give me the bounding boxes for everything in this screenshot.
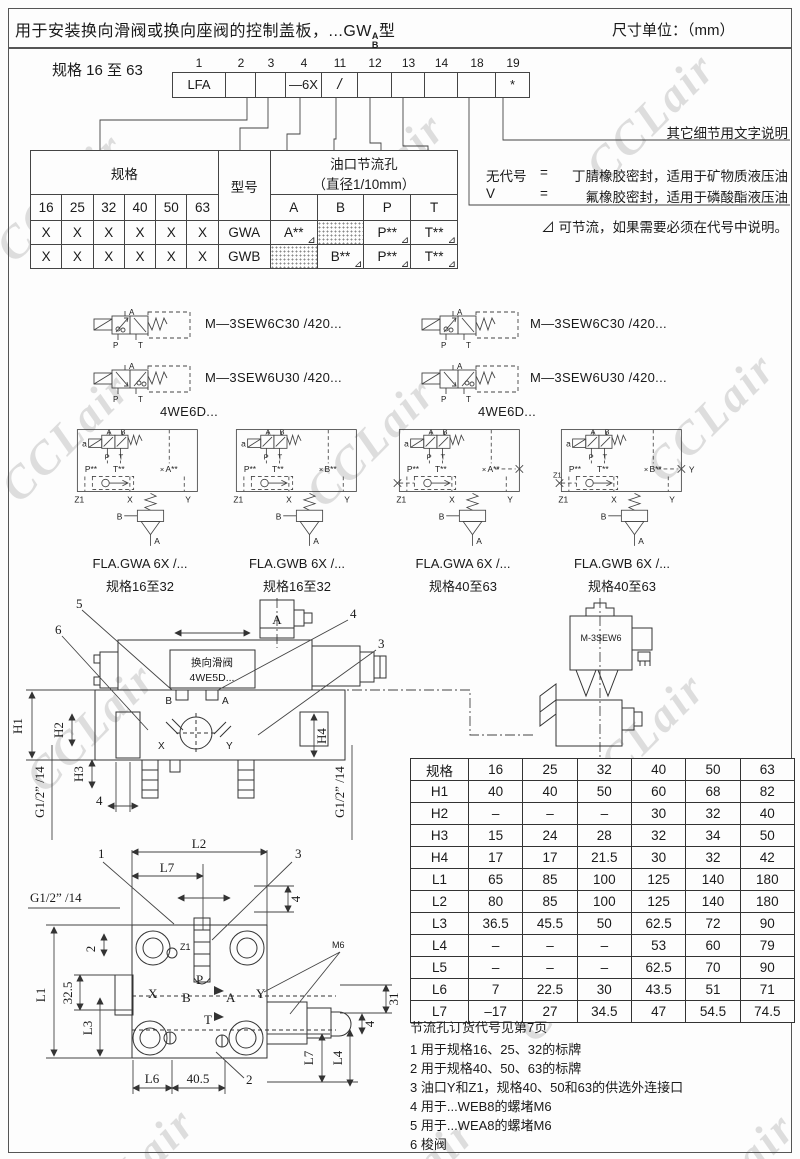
dim-l4: L4 [330, 1050, 345, 1065]
seal-code-row: V = 氟橡胶密封，适用于磷酸酯液压油 [486, 186, 788, 206]
mark-cell: X [156, 221, 187, 245]
port-z1-label: Z1 [180, 942, 191, 952]
shuttle-port-b: B [439, 512, 445, 522]
size-cell: 25 [62, 195, 93, 221]
dim-cell: 43.5 [631, 979, 685, 1001]
throttle-triangle-icon: ⊿ [541, 220, 555, 235]
port-label-p: P [441, 341, 446, 350]
footnote: 4 用于...WEB8的螺堵M6 [410, 1097, 683, 1116]
dim-cell: 62.5 [631, 957, 685, 979]
orifice-cell: A**⊿ [270, 221, 317, 245]
port-z1: Z1 [558, 495, 568, 505]
dim-cell: 180 [740, 869, 794, 891]
circuit-graphic [77, 430, 197, 546]
port-y: Y [507, 495, 513, 505]
size-cell: 50 [156, 195, 187, 221]
dim-cell: – [469, 803, 523, 825]
dim-cell: 30 [631, 847, 685, 869]
dim-4: 4 [96, 793, 103, 808]
circuit-caption: FLA.GWA 6X /... [383, 556, 543, 571]
pos-number: 12 [358, 56, 392, 70]
dim-header: 规格 [411, 759, 469, 781]
dim-header: 63 [740, 759, 794, 781]
dim-cell: 60 [631, 781, 685, 803]
port-label-a: A [457, 362, 463, 371]
port-x: X [127, 495, 133, 505]
port-star: A** [166, 464, 179, 474]
dim-cell: 80 [469, 891, 523, 913]
dim-cell: 34.5 [577, 1001, 631, 1023]
dim-cell: 34 [686, 825, 740, 847]
dim-cell: 50 [577, 913, 631, 935]
port-star: A** [488, 464, 501, 474]
ordering-code-boxes: LFA —6X / * [172, 72, 530, 98]
dim-cell: L1 [411, 869, 469, 891]
code-box [392, 72, 425, 98]
footnote: 5 用于...WEA8的螺堵M6 [410, 1116, 683, 1135]
port-label-t: T [466, 341, 471, 350]
pilot-model-label: M—3SEW6U30 /420... [530, 370, 667, 385]
pilot-model-label: M—3SEW6C30 /420... [205, 316, 342, 331]
orifice-line2: （直径1/10mm） [271, 173, 457, 193]
port-a: A [590, 427, 595, 436]
dim-cell: L3 [411, 913, 469, 935]
dim-l6: L6 [145, 1071, 160, 1086]
dim-cell: 71 [740, 979, 794, 1001]
port-cell: B [317, 195, 364, 221]
footnote: 2 用于规格40、50、63的标牌 [410, 1059, 683, 1078]
dim-cell: 40 [469, 781, 523, 803]
port-t: T [603, 453, 608, 462]
callout-2: 2 [246, 1072, 253, 1087]
equals-sign: = [540, 186, 558, 206]
dim-cell: – [523, 935, 577, 957]
port-p: P [427, 453, 432, 462]
port-label-a: A [129, 362, 135, 371]
dim-cell: 32 [631, 825, 685, 847]
dim-cell: 7 [469, 979, 523, 1001]
port-label-a: A [457, 308, 463, 317]
equals-sign: = [540, 165, 558, 185]
orifice-value: B** [331, 249, 351, 264]
circuit-diagram-gwa-large: a A B P T P** T** × A** Z1 X Y B A [390, 425, 540, 557]
circuit-range: 规格16至32 [60, 576, 220, 595]
orifice-cell: B**⊿ [317, 245, 364, 269]
table-row: L28085100125140180 [411, 891, 795, 913]
dim-cell: 53 [631, 935, 685, 957]
pilot-sub-label: 4WE6D... [160, 404, 218, 419]
size-cell: 32 [93, 195, 124, 221]
callout-4: 4 [350, 606, 357, 621]
table-row: H2–––303240 [411, 803, 795, 825]
port-y: Y [185, 495, 191, 505]
dim-4b: 4 [362, 1020, 377, 1027]
callout-3: 3 [378, 636, 385, 651]
port-label-p: P [113, 341, 118, 350]
circuit-diagram-gwb-large: a A B P T P** T** × B** Z1 Y Z1 X Y B A [552, 425, 702, 557]
valve-symbol-graphic [422, 365, 518, 394]
orifice-cell-blocked [317, 221, 364, 245]
pos-number: 3 [256, 56, 286, 70]
circuit-range: 规格40至63 [542, 576, 702, 595]
mark-cell: X [31, 221, 62, 245]
mark-cell: X [62, 221, 93, 245]
circuit-caption: FLA.GWB 6X /... [217, 556, 377, 571]
port-t: T [278, 453, 283, 462]
pos-number: 4 [286, 56, 322, 70]
shuttle-port-b: B [117, 512, 123, 522]
dim-cell: 32 [686, 847, 740, 869]
dim-g12-left: G1/2” /14 [32, 766, 47, 818]
dimension-table: 规格 16 25 32 40 50 63 H1404050606882 H2––… [410, 758, 795, 1023]
solenoid-pilot-valve [540, 603, 652, 746]
port-b: B [121, 427, 126, 436]
mark-cell: X [124, 221, 155, 245]
dim-cell: H4 [411, 847, 469, 869]
units-label: 尺寸单位：（mm） [612, 19, 735, 40]
orifice-cell: P**⊿ [364, 221, 411, 245]
shuttle-port-a: A [313, 536, 319, 546]
dim-40-5: 40.5 [187, 1071, 210, 1086]
m6-label: M6 [332, 940, 345, 950]
dim-cell: 47 [631, 1001, 685, 1023]
pos-number: 1 [172, 56, 226, 70]
dim-cell: 32 [686, 803, 740, 825]
port-tstar: T** [435, 464, 447, 474]
dim-cell: 28 [577, 825, 631, 847]
dim-cell: 65 [469, 869, 523, 891]
port-label-p: P [113, 395, 118, 404]
port-a: A [265, 427, 270, 436]
connector-a-label: A [272, 612, 282, 627]
pilot-valve-symbol: A P T [410, 308, 522, 350]
port-x: X [449, 495, 455, 505]
dim-l7: L7 [160, 860, 175, 875]
pilot-model-label: M—3SEW6U30 /420... [205, 370, 342, 385]
dim-cell: 45.5 [523, 913, 577, 935]
dim-cell: 90 [740, 957, 794, 979]
pos-number: 2 [226, 56, 256, 70]
throttle-triangle-icon: ⊿ [401, 259, 409, 270]
title-suffix: 型 [379, 23, 396, 40]
x-mark: × [160, 465, 164, 474]
dim-cell: 50 [740, 825, 794, 847]
dim-cell: 40 [740, 803, 794, 825]
shuttle-port-a: A [638, 536, 644, 546]
pos-number: 11 [322, 56, 358, 70]
model-cell: GWA [218, 221, 270, 245]
port-p: P [105, 453, 110, 462]
port-x: X [611, 495, 617, 505]
solenoid-label: a [82, 438, 87, 448]
seal-code-row: 无代号 = 丁腈橡胶密封，适用于矿物质液压油 [486, 165, 788, 185]
table-row: 规格 型号 油口节流孔（直径1/10mm） [31, 151, 458, 195]
port-z1: Z1 [396, 495, 406, 505]
port-label-t: T [466, 395, 471, 404]
top-view-drawing: L2 L7 G1/2” /14 4 2 L1 32.5 L3 31 4 L7 L… [8, 830, 410, 1156]
mark-cell: X [187, 245, 218, 269]
dim-h2: H2 [51, 722, 66, 738]
port-b: B [605, 427, 610, 436]
dim-cell: 125 [631, 869, 685, 891]
table-row: H1404050606882 [411, 781, 795, 803]
code-box [358, 72, 392, 98]
pos-number: 19 [496, 56, 530, 70]
dim-cell: L6 [411, 979, 469, 1001]
shuttle-port-b: B [601, 512, 607, 522]
dim-cell: 90 [740, 913, 794, 935]
valve-symbol-graphic [422, 311, 518, 340]
dim-cell: L5 [411, 957, 469, 979]
dim-cell: 140 [686, 891, 740, 913]
code-box: * [496, 72, 530, 98]
port-y-label: Y [226, 741, 233, 752]
seal-description: 丁腈橡胶密封，适用于矿物质液压油 [558, 165, 788, 185]
port-b-label: B [165, 696, 172, 707]
dim-header: 32 [577, 759, 631, 781]
dim-cell: 79 [740, 935, 794, 957]
circuit-caption: FLA.GWB 6X /... [542, 556, 702, 571]
dim-cell: 180 [740, 891, 794, 913]
dim-cell: 17 [469, 847, 523, 869]
footnotes: 1 用于规格16、25、32的标牌 2 用于规格40、50、63的标牌 3 油口… [410, 1040, 683, 1154]
port-tstar: T** [597, 464, 609, 474]
orifice-value: T** [425, 249, 444, 264]
dim-32-5: 32.5 [60, 982, 75, 1005]
port-z1: Z1 [74, 495, 84, 505]
code-box [226, 72, 256, 98]
datasheet-page: CCLair CCLair CCLair CCLair CCLair CCLai… [0, 0, 800, 1159]
size-cell: 63 [187, 195, 218, 221]
port-star: B** [650, 464, 663, 474]
dim-cell: 21.5 [577, 847, 631, 869]
ext-y: Y [689, 465, 695, 475]
dim-cell: 85 [523, 869, 577, 891]
dim-cell: 24 [523, 825, 577, 847]
port-x: X [286, 495, 292, 505]
table-row: L6722.53043.55171 [411, 979, 795, 1001]
port-t-label: T [204, 1012, 212, 1027]
mark-cell: X [187, 221, 218, 245]
dim-cell: – [523, 803, 577, 825]
callout-6: 6 [55, 622, 62, 637]
dim-header: 40 [631, 759, 685, 781]
x-mark: × [482, 465, 486, 474]
dim-cell: 85 [523, 891, 577, 913]
footnote: 6 梭阀 [410, 1135, 683, 1154]
variant-b: B [372, 41, 379, 50]
solenoid-label: a [404, 438, 409, 448]
dim-cell: 30 [577, 979, 631, 1001]
port-tstar: T** [113, 464, 125, 474]
orifice-cell: T**⊿ [411, 245, 458, 269]
code-box [425, 72, 458, 98]
dim-cell: 125 [631, 891, 685, 913]
dim-header: 16 [469, 759, 523, 781]
solenoid-label: a [566, 438, 571, 448]
table-row-gwa: X X X X X X GWA A**⊿ P**⊿ T**⊿ [31, 221, 458, 245]
x-mark: × [644, 465, 648, 474]
port-cell: A [270, 195, 317, 221]
table-row: H4171721.5303242 [411, 847, 795, 869]
port-label-p: P [441, 395, 446, 404]
code-box: —6X [286, 72, 322, 98]
throttle-triangle-icon: ⊿ [354, 259, 362, 270]
dim-cell: L2 [411, 891, 469, 913]
dim-cell: – [577, 935, 631, 957]
pilot-model-label: M—3SEW6C30 /420... [530, 316, 667, 331]
throttle-note-text: 可节流，如果需要必须在代号中说明。 [559, 220, 789, 235]
port-label-t: T [138, 395, 143, 404]
dim-g12: G1/2” /14 [30, 890, 82, 905]
mark-cell: X [31, 245, 62, 269]
code-box: LFA [172, 72, 226, 98]
seal-code: V [486, 186, 540, 206]
dim-cell: 74.5 [740, 1001, 794, 1023]
table-row: L5–––62.57090 [411, 957, 795, 979]
dim-cell: 42 [740, 847, 794, 869]
callout-5: 5 [76, 596, 83, 611]
dim-cell: 70 [686, 957, 740, 979]
dim-cell: H1 [411, 781, 469, 803]
dim-cell: H2 [411, 803, 469, 825]
port-b: B [443, 427, 448, 436]
orifice-cell: P**⊿ [364, 245, 411, 269]
port-t: T [441, 453, 446, 462]
dim-cell: 140 [686, 869, 740, 891]
code-box-throttle: / [322, 72, 358, 98]
dim-cell: – [469, 957, 523, 979]
seal-code: 无代号 [486, 165, 540, 185]
dim-cell: 17 [523, 847, 577, 869]
title-text: 用于安装换向滑阀或换向座阀的控制盖板，...GW [15, 23, 372, 40]
orifice-line1: 油口节流孔 [271, 153, 457, 173]
dim-cell: 15 [469, 825, 523, 847]
pos-number: 18 [458, 56, 496, 70]
dim-cell: 30 [631, 803, 685, 825]
size-cell: 16 [31, 195, 62, 221]
orifice-order-note: 节流孔订货代号见第7页 [410, 1017, 547, 1036]
port-a-label: A [222, 696, 229, 707]
port-cell: T [411, 195, 458, 221]
model-cell: GWB [218, 245, 270, 269]
table-row: H3152428323450 [411, 825, 795, 847]
port-p: P [264, 453, 269, 462]
circuit-caption: FLA.GWA 6X /... [60, 556, 220, 571]
footnote: 3 油口Y和Z1，规格40、50和63的供选外连接口 [410, 1078, 683, 1097]
gw-variant-stack: AB [372, 32, 379, 50]
port-pstar: P** [407, 464, 420, 474]
dim-cell: – [577, 957, 631, 979]
dim-cell: 60 [686, 935, 740, 957]
spec-orifice-table: 规格 型号 油口节流孔（直径1/10mm） 16 25 32 40 50 63 … [30, 150, 458, 269]
circuit-diagram-gwb-small: a A B P T P** T** × B** Z1 X Y B A [227, 425, 377, 557]
code-box [256, 72, 286, 98]
orifice-value: P** [378, 225, 398, 240]
valve-name-label: 换向滑阀 [191, 656, 233, 669]
header-spec: 规格 [31, 151, 219, 195]
dim-cell: 50 [577, 781, 631, 803]
dim-l7b: L7 [301, 1050, 316, 1065]
port-p-label: P [196, 972, 203, 987]
orifice-cell-blocked [270, 245, 317, 269]
port-t: T [119, 453, 124, 462]
port-label-a: A [129, 308, 135, 317]
shuttle-port-a: A [476, 536, 482, 546]
port-a: A [106, 427, 111, 436]
dim-cell: 40 [523, 781, 577, 803]
mark-cell: X [124, 245, 155, 269]
port-pstar: P** [85, 464, 98, 474]
throttle-triangle-icon: ⊿ [448, 259, 456, 270]
dim-header: 50 [686, 759, 740, 781]
pilot-valve-symbol: A P T [410, 362, 522, 404]
circuit-range: 规格16至32 [217, 576, 377, 595]
callout-3: 3 [295, 846, 302, 861]
dim-cell: – [469, 935, 523, 957]
x-mark: × [319, 465, 323, 474]
table-row: L16585100125140180 [411, 869, 795, 891]
port-a: A [428, 427, 433, 436]
solenoid-label: a [241, 438, 246, 448]
mark-cell: X [93, 245, 124, 269]
dim-g12-right: G1/2” /14 [332, 766, 347, 818]
code-box [458, 72, 496, 98]
size-range-label: 规格 16 至 63 [52, 59, 143, 80]
dim-cell: 36.5 [469, 913, 523, 935]
circuit-graphic [556, 430, 685, 546]
dim-cell: – [577, 803, 631, 825]
dim-h4: H4 [314, 728, 329, 744]
port-pstar: P** [569, 464, 582, 474]
dim-4: 4 [288, 895, 303, 902]
port-p: P [589, 453, 594, 462]
valve-model-label: 4WE5D... [190, 672, 235, 684]
pilot-valve-symbol: A P T [82, 308, 194, 350]
dim-cell: 54.5 [686, 1001, 740, 1023]
valve-symbol-graphic [94, 365, 190, 394]
mark-cell: X [93, 221, 124, 245]
dim-cell: 68 [686, 781, 740, 803]
circuit-range: 规格40至63 [383, 576, 543, 595]
port-b: B [280, 427, 285, 436]
dim-l2: L2 [192, 836, 206, 851]
dim-cell: L4 [411, 935, 469, 957]
table-row-gwb: X X X X X X GWB B**⊿ P**⊿ T**⊿ [31, 245, 458, 269]
orifice-value: T** [425, 225, 444, 240]
ext-z1: Z1 [553, 470, 562, 479]
mark-cell: X [62, 245, 93, 269]
table-row: L336.545.55062.57290 [411, 913, 795, 935]
circuit-graphic [236, 430, 356, 546]
port-pstar: P** [244, 464, 257, 474]
ordering-position-numbers: 1 2 3 4 11 12 13 14 18 19 [172, 56, 530, 70]
seal-description: 氟橡胶密封，适用于磷酸酯液压油 [558, 186, 788, 206]
port-y: Y [669, 495, 675, 505]
size-cell: 40 [124, 195, 155, 221]
dim-header: 25 [523, 759, 577, 781]
footnote: 1 用于规格16、25、32的标牌 [410, 1040, 683, 1059]
dim-2: 2 [83, 946, 98, 953]
port-y: Y [344, 495, 350, 505]
port-b-label: B [182, 990, 191, 1005]
port-x-label: X [158, 741, 165, 752]
pos-number: 13 [392, 56, 425, 70]
port-a-label: A [226, 990, 236, 1005]
header-orifice: 油口节流孔（直径1/10mm） [270, 151, 457, 195]
dim-cell: 62.5 [631, 913, 685, 935]
dim-cell: 51 [686, 979, 740, 1001]
